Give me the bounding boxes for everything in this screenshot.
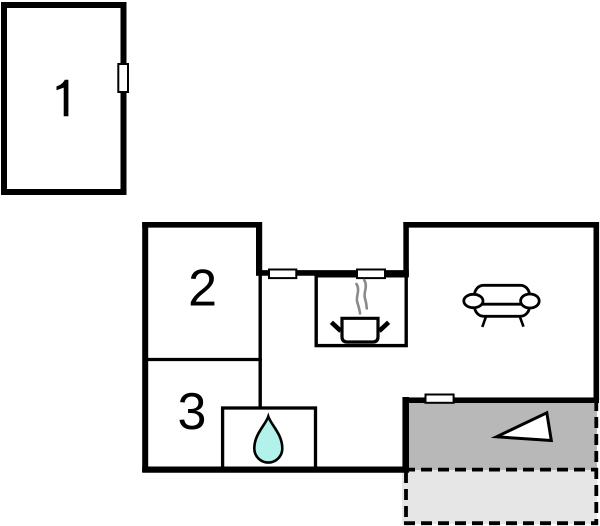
svg-text:3: 3 (178, 383, 207, 441)
svg-text:2: 2 (188, 260, 217, 318)
